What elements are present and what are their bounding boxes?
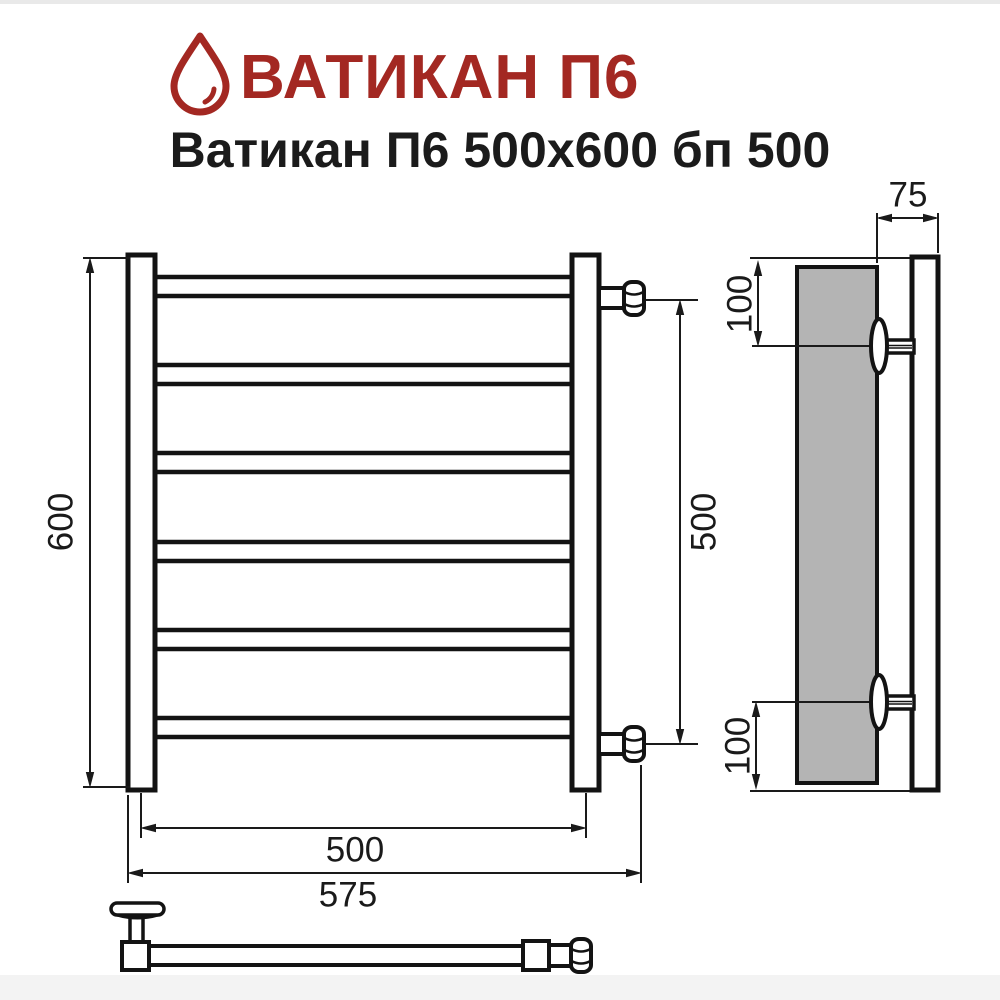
dimension-depth-75: 75 [876,176,939,264]
bar-1 [153,277,574,296]
dimension-top-offset-100: 100 [721,260,763,347]
dim-label-600: 600 [42,493,81,551]
dimension-bottom-offset-100: 100 [719,701,761,790]
wall-panel [797,267,877,783]
detail-connector [549,939,591,972]
dimension-height-600: 600 [42,257,131,788]
detail-bar-tube [149,946,523,965]
side-view: 75 100 100 [719,176,940,792]
front-view-bars [153,277,574,737]
product-drawing-page: ВАТИКАН П6 Ватикан П6 500x600 бп 500 [0,0,1000,1000]
bottom-wall-bracket [871,675,914,729]
bar-3 [153,453,574,472]
dim-label-575: 575 [319,876,377,915]
right-post [572,255,599,790]
front-view: 600 500 500 [42,255,724,915]
bar-4 [153,542,574,561]
dimension-axles-500: 500 [140,793,587,870]
dim-label-100-bottom: 100 [719,717,758,775]
technical-drawing: 600 500 500 [0,0,1000,1000]
dimension-connectors-500: 500 [646,299,724,745]
dim-label-500-axles: 500 [326,831,384,870]
bar-5 [153,630,574,649]
top-connector [599,282,644,315]
dim-label-500-connectors: 500 [685,493,724,551]
dim-label-75: 75 [889,176,928,215]
bar-2 [153,365,574,384]
dimension-overall-575: 575 [127,765,642,915]
bar-6 [153,718,574,737]
post-side-profile [912,257,938,790]
dim-label-100-top: 100 [721,275,760,333]
bottom-connector [599,727,644,761]
top-wall-bracket [871,319,914,373]
left-post [128,255,155,790]
detail-right-post-section [523,941,549,970]
detail-bracket-cap [111,903,164,918]
detail-left-post-section [122,942,149,970]
